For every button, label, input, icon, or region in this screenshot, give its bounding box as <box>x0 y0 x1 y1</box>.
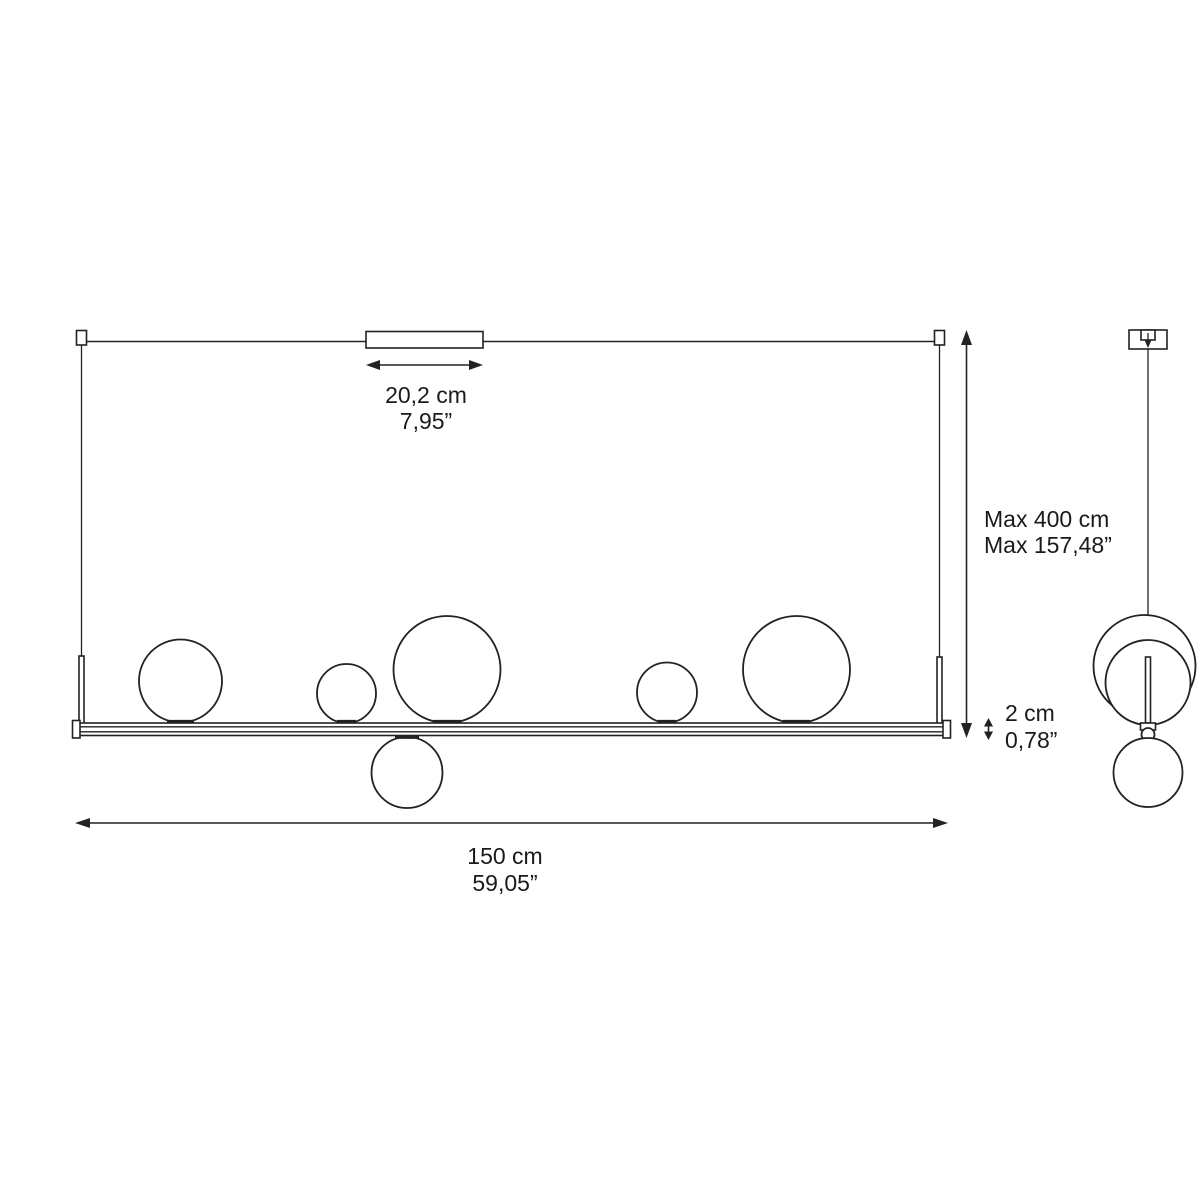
bar-end-cap-right <box>943 721 951 739</box>
sphere-below-bar <box>372 737 443 808</box>
max-height-label-inch: Max 157,48” <box>984 532 1112 558</box>
technical-drawing-canvas: 20,2 cm 7,95” Max 400 cm Max 157,48” 2 c… <box>0 0 1200 1200</box>
bar-thickness-label-inch: 0,78” <box>1005 727 1057 753</box>
arrow-right-icon <box>933 818 948 828</box>
pendant-lamp-dimension-drawing: 20,2 cm 7,95” Max 400 cm Max 157,48” 2 c… <box>0 0 1200 1200</box>
side-suspension-rod <box>1146 657 1151 723</box>
canopy-width-label-cm: 20,2 cm <box>385 382 467 408</box>
bar-thickness-dimension: 2 cm 0,78” <box>984 700 1057 753</box>
side-sphere-bottom <box>1114 738 1183 807</box>
total-width-label-inch: 59,05” <box>472 870 537 896</box>
sphere-2 <box>317 664 376 723</box>
max-height-dimension: Max 400 cm Max 157,48” <box>961 330 1112 738</box>
front-view <box>73 331 951 809</box>
max-height-label-cm: Max 400 cm <box>984 506 1109 532</box>
canopy-power-box <box>366 332 483 349</box>
canopy-width-label-inch: 7,95” <box>400 408 452 434</box>
suspension-rod-left <box>79 656 84 724</box>
canopy-width-dimension: 20,2 cm 7,95” <box>366 360 483 434</box>
sphere-3 <box>394 616 501 723</box>
sphere-4 <box>637 663 697 723</box>
bar-thickness-label-cm: 2 cm <box>1005 700 1055 726</box>
suspension-rod-right <box>937 657 942 724</box>
sphere-1 <box>139 640 222 723</box>
bar <box>80 723 944 736</box>
sphere-5 <box>743 616 850 723</box>
ceiling-mount-right <box>935 331 945 346</box>
total-width-label-cm: 150 cm <box>467 843 542 869</box>
total-width-dimension: 150 cm 59,05” <box>75 818 948 896</box>
side-view <box>1094 330 1196 807</box>
arrow-left-icon <box>366 360 380 370</box>
arrow-down-icon <box>984 732 993 741</box>
arrow-up-icon <box>961 330 972 345</box>
arrow-up-icon <box>984 718 993 727</box>
ceiling-mount-left <box>77 331 87 346</box>
bar-end-cap-left <box>73 721 81 739</box>
arrow-left-icon <box>75 818 90 828</box>
arrow-down-icon <box>961 723 972 738</box>
dimension-annotations: 20,2 cm 7,95” Max 400 cm Max 157,48” 2 c… <box>75 330 1112 896</box>
arrow-right-icon <box>469 360 483 370</box>
